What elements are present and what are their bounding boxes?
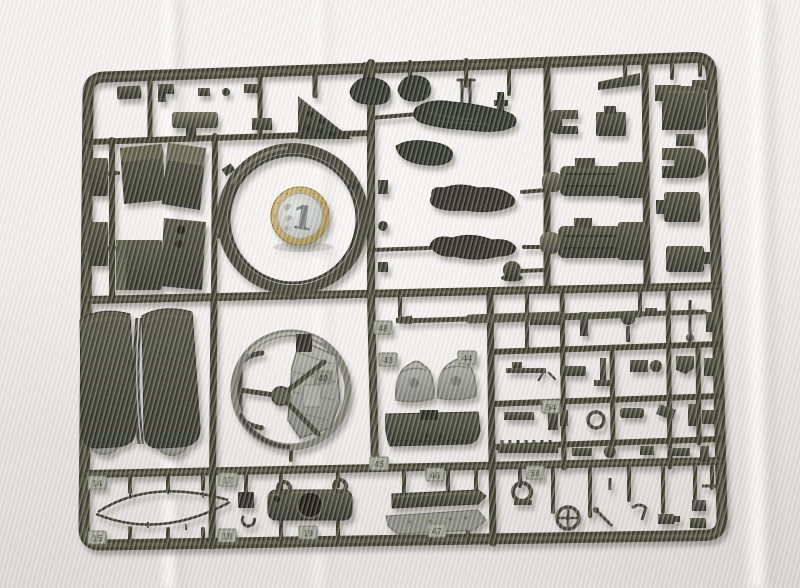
part-number-tag: 47: [428, 524, 446, 537]
part-number-text: 17: [223, 476, 233, 486]
part-number-text: 46: [430, 471, 440, 481]
part-number-tag: 40: [314, 371, 332, 384]
bell-mount-parts: [386, 359, 481, 446]
sprue-svg: 1: [0, 0, 800, 588]
part-number-text: 19: [303, 529, 313, 539]
part-number-tag: 15: [88, 531, 106, 544]
part-number-text: 48: [378, 324, 388, 334]
part-number-tag: 54: [542, 400, 560, 413]
part-number-text: 18: [222, 532, 232, 542]
part-number-tag: 48: [374, 321, 392, 334]
part-number-text: 47: [432, 527, 442, 537]
part-number-text: 14: [92, 479, 102, 489]
part-number-tag: 17: [219, 473, 237, 486]
gun-breech-parts: [540, 73, 646, 260]
part-number-text: 45: [374, 460, 384, 470]
part-number-text: 43: [383, 356, 393, 366]
part-number-text: 54: [546, 403, 556, 413]
left-stowage-boxes: [90, 143, 206, 290]
part-number-tag: 58: [526, 466, 544, 479]
part-number-text: 40: [318, 374, 328, 384]
sprue-frame-and-runners: [84, 57, 722, 546]
right-column-hatch-parts: [655, 80, 710, 272]
part-number-tag: 14: [88, 476, 106, 489]
fender-parts: [80, 309, 200, 455]
part-number-tag: 44: [458, 351, 476, 364]
part-number-tag: 43: [379, 353, 397, 366]
part-number-text: 15: [92, 534, 102, 544]
part-number-tag: 19: [299, 526, 317, 539]
photo-model-kit-sprue: 1: [0, 0, 800, 588]
euro-coin: 1: [271, 187, 333, 252]
part-number-tag: 45: [370, 457, 388, 470]
part-number-text: 58: [530, 469, 540, 479]
sprue: 1: [80, 57, 722, 546]
bottom-row-parts: [96, 478, 718, 534]
part-number-text: 44: [462, 354, 472, 364]
part-number-tag: 18: [218, 529, 236, 542]
part-number-tag: 46: [426, 468, 444, 481]
gun-shield-ring-assembly: [234, 333, 348, 447]
